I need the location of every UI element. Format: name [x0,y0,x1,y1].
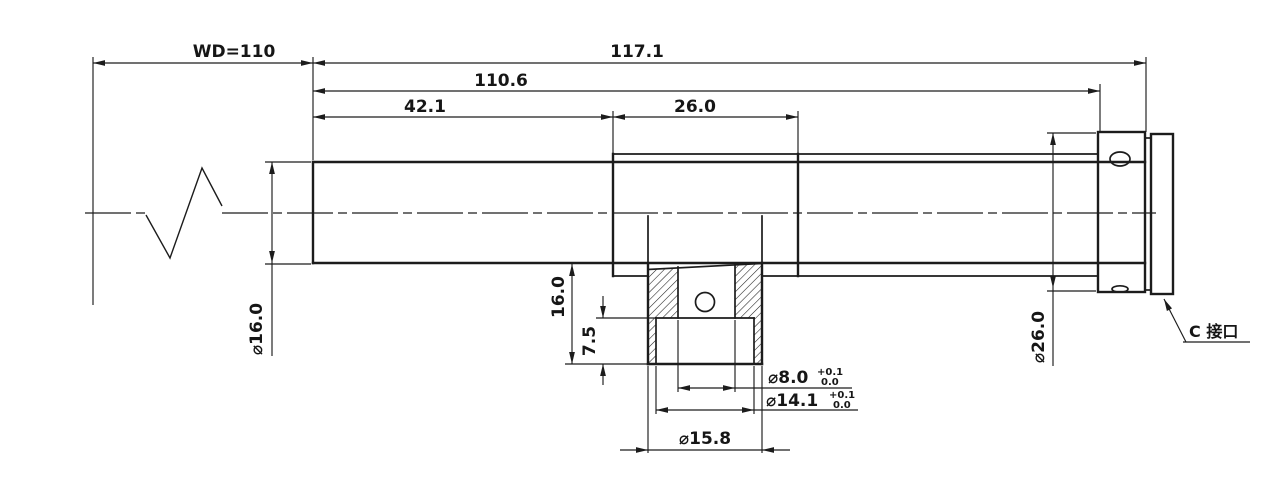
port-step-depth-label: 7.5 [580,326,600,356]
mount-diameter-label: ⌀26.0 [1029,311,1049,363]
dimension-port-bore: ⌀8.0 +0.1 0.0 [678,367,852,388]
front-segment-label: 42.1 [404,97,446,117]
dimension-mount-diameter: ⌀26.0 [1029,133,1053,366]
port-height-label: 16.0 [549,276,569,318]
port-bore-label: ⌀8.0 [768,368,809,388]
dimension-working-distance: WD=110 [93,42,313,63]
total-length-label: 117.1 [610,42,664,62]
dimension-front-segment: 42.1 [313,97,613,117]
lens-barrel [313,154,1145,276]
port-counterbore-label: ⌀14.1 [766,391,818,411]
port-bore-tol-lower: 0.0 [821,377,839,388]
set-screw [1110,152,1130,166]
housing-length-label: 110.6 [474,71,528,91]
dimension-port-step-depth: 7.5 [580,296,603,385]
dimension-port-counterbore: ⌀14.1 +0.1 0.0 [656,390,858,411]
c-mount-flange [1151,134,1173,294]
barrel-diameter-label: ⌀16.0 [247,303,267,355]
c-mount-label: C 接口 [1189,322,1238,341]
port-outer-diameter-label: ⌀15.8 [679,429,731,449]
dimension-port-height: 16.0 [549,264,572,364]
illumination-port [648,263,762,364]
dimension-housing-length: 110.6 [313,71,1100,91]
port-screw-hole [696,293,715,312]
port-counterbore-tol-lower: 0.0 [833,400,851,411]
dimension-port-segment: 26.0 [613,97,798,117]
dimension-total-length: 117.1 [313,42,1146,63]
wd-label: WD=110 [193,42,276,62]
port-segment-label: 26.0 [674,97,716,117]
lens-engineering-drawing: WD=110 117.1 110.6 42.1 26.0 ⌀16.0 ⌀26.0… [0,0,1268,484]
dimension-barrel-diameter: ⌀16.0 [247,162,272,356]
optical-axis-centerline [85,168,1156,258]
dimension-port-outer-diameter: ⌀15.8 [620,429,790,450]
break-symbol [146,168,222,258]
technical-drawing-canvas: WD=110 117.1 110.6 42.1 26.0 ⌀16.0 ⌀26.0… [0,0,1268,484]
c-mount-callout: C 接口 [1164,299,1250,342]
